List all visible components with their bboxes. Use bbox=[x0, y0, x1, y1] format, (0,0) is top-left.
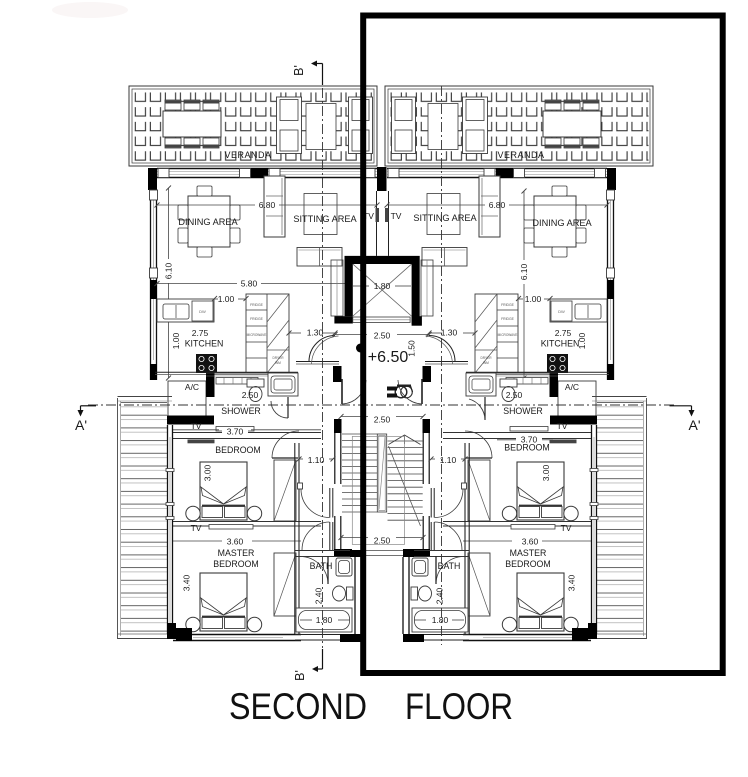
svg-text:1.00: 1.00 bbox=[171, 332, 181, 349]
svg-text:DW: DW bbox=[199, 309, 206, 314]
svg-text:3.60: 3.60 bbox=[522, 537, 539, 547]
svg-text:VERANDA: VERANDA bbox=[224, 150, 271, 160]
svg-text:6.80: 6.80 bbox=[489, 200, 506, 210]
svg-text:6.10: 6.10 bbox=[163, 262, 173, 279]
svg-text:VERANDA: VERANDA bbox=[497, 150, 544, 160]
svg-text:5.80: 5.80 bbox=[241, 279, 258, 289]
svg-text:2.50: 2.50 bbox=[374, 536, 391, 546]
svg-text:1.80: 1.80 bbox=[316, 615, 333, 625]
svg-text:3.00: 3.00 bbox=[203, 464, 213, 481]
svg-text:DINING AREA: DINING AREA bbox=[178, 217, 238, 227]
svg-text:A': A' bbox=[75, 417, 87, 433]
svg-text:TV: TV bbox=[561, 523, 572, 533]
svg-text:1.00: 1.00 bbox=[525, 294, 542, 304]
svg-text:2.75: 2.75 bbox=[555, 328, 572, 338]
svg-text:DRYER: DRYER bbox=[272, 356, 284, 360]
svg-text:3.00: 3.00 bbox=[541, 464, 551, 481]
svg-text:TV: TV bbox=[557, 421, 568, 431]
svg-text:MICROWAVE: MICROWAVE bbox=[247, 333, 267, 337]
svg-text:B': B' bbox=[293, 670, 307, 681]
svg-text:1.30: 1.30 bbox=[441, 328, 458, 338]
svg-text:3.40: 3.40 bbox=[182, 574, 192, 591]
svg-text:6.80: 6.80 bbox=[259, 200, 276, 210]
svg-text:SHOWER: SHOWER bbox=[221, 406, 261, 416]
svg-text:FLOOR: FLOOR bbox=[405, 685, 513, 727]
svg-text:B': B' bbox=[292, 65, 306, 76]
svg-text:2.50: 2.50 bbox=[242, 390, 259, 400]
svg-text:MASTER: MASTER bbox=[510, 548, 547, 558]
svg-text:KITCHEN: KITCHEN bbox=[185, 339, 224, 349]
svg-text:WM: WM bbox=[275, 361, 281, 365]
svg-text:BATH: BATH bbox=[310, 561, 333, 571]
svg-text:TV: TV bbox=[191, 523, 202, 533]
svg-text:2.50: 2.50 bbox=[374, 415, 391, 425]
svg-text:TV: TV bbox=[391, 211, 402, 221]
svg-text:SITTING AREA: SITTING AREA bbox=[293, 214, 357, 224]
svg-text:SITTING AREA: SITTING AREA bbox=[413, 213, 477, 223]
svg-text:2.50: 2.50 bbox=[506, 390, 523, 400]
svg-text:MASTER: MASTER bbox=[218, 548, 255, 558]
svg-text:A': A' bbox=[688, 417, 700, 433]
svg-text:3.70: 3.70 bbox=[521, 435, 538, 445]
svg-text:FRIDGE: FRIDGE bbox=[250, 317, 264, 321]
svg-text:2.40: 2.40 bbox=[435, 587, 445, 604]
svg-text:1.10: 1.10 bbox=[440, 455, 457, 465]
svg-text:1.80: 1.80 bbox=[374, 281, 391, 291]
svg-text:BEDROOM: BEDROOM bbox=[505, 559, 550, 569]
svg-text:3.60: 3.60 bbox=[227, 537, 244, 547]
svg-text:SECOND: SECOND bbox=[229, 685, 367, 727]
svg-text:BEDROOM: BEDROOM bbox=[215, 445, 260, 455]
svg-text:MICROWAVE: MICROWAVE bbox=[498, 333, 518, 337]
svg-text:2.75: 2.75 bbox=[192, 328, 209, 338]
svg-text:DRYER: DRYER bbox=[480, 356, 492, 360]
svg-text:+6.50: +6.50 bbox=[368, 349, 409, 366]
svg-text:SHOWER: SHOWER bbox=[503, 406, 543, 416]
svg-text:6.10: 6.10 bbox=[519, 263, 529, 280]
svg-text:A/C: A/C bbox=[565, 382, 579, 392]
svg-text:KITCHEN: KITCHEN bbox=[541, 339, 580, 349]
svg-text:1.80: 1.80 bbox=[432, 615, 449, 625]
svg-text:FRIDGE: FRIDGE bbox=[250, 303, 264, 307]
svg-text:3.40: 3.40 bbox=[567, 574, 577, 591]
svg-text:1.00: 1.00 bbox=[577, 332, 587, 349]
svg-text:BEDROOM: BEDROOM bbox=[213, 559, 258, 569]
svg-text:3.70: 3.70 bbox=[227, 427, 244, 437]
svg-text:FRIDGE: FRIDGE bbox=[501, 317, 515, 321]
svg-text:DINING AREA: DINING AREA bbox=[532, 218, 592, 228]
svg-text:1.30: 1.30 bbox=[307, 328, 324, 338]
svg-text:1.10: 1.10 bbox=[308, 455, 325, 465]
svg-text:2.40: 2.40 bbox=[314, 587, 324, 604]
svg-text:1.00: 1.00 bbox=[218, 294, 235, 304]
svg-text:2.50: 2.50 bbox=[374, 331, 391, 341]
svg-text:BATH: BATH bbox=[438, 561, 461, 571]
svg-text:FRIDGE: FRIDGE bbox=[501, 303, 515, 307]
svg-text:A/C: A/C bbox=[185, 382, 199, 392]
svg-text:DW: DW bbox=[558, 309, 565, 314]
svg-text:WM: WM bbox=[483, 361, 489, 365]
